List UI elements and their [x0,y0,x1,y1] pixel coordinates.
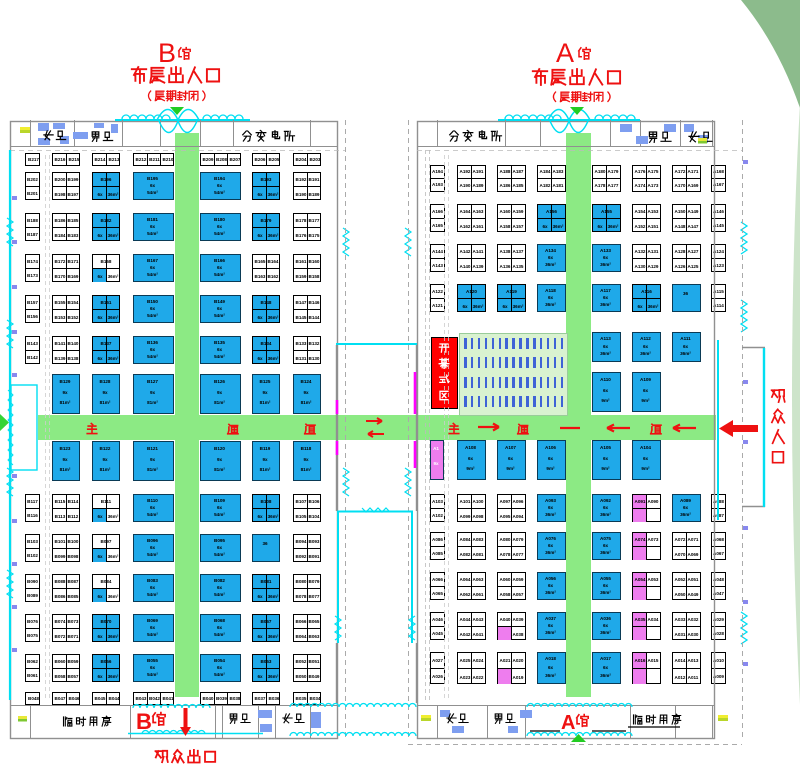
svg-text:B: B [136,709,152,734]
svg-text:B: B [158,38,176,68]
svg-text:A: A [556,38,574,68]
svg-text:A: A [561,712,575,734]
